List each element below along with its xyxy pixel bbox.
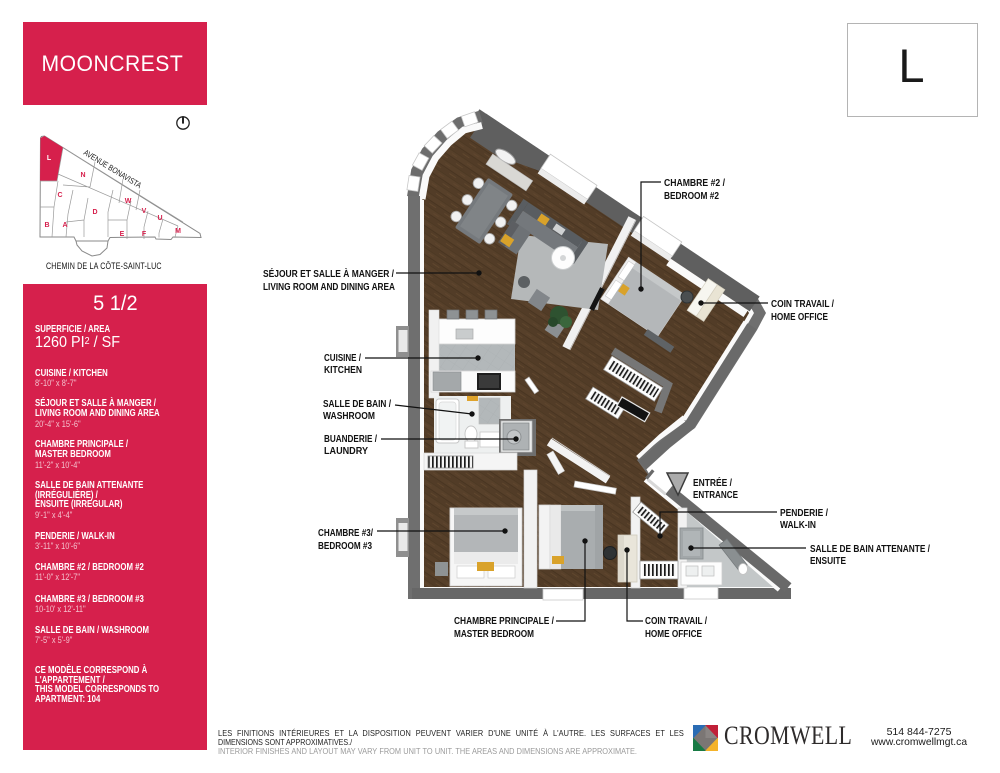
svg-text:WALK-IN: WALK-IN (780, 519, 816, 531)
svg-text:ENTRANCE: ENTRANCE (693, 489, 738, 501)
svg-text:PENDERIE /: PENDERIE / (780, 507, 828, 519)
svg-text:CHAMBRE PRINCIPALE /: CHAMBRE PRINCIPALE / (454, 615, 554, 627)
svg-text:MASTER BEDROOM: MASTER BEDROOM (454, 628, 534, 640)
svg-text:CUISINE /: CUISINE / (324, 352, 361, 364)
svg-text:SALLE DE BAIN /: SALLE DE BAIN / (323, 398, 391, 410)
svg-text:HOME OFFICE: HOME OFFICE (645, 628, 702, 640)
svg-text:BUANDERIE /: BUANDERIE / (324, 433, 377, 445)
svg-text:SÉJOUR ET SALLE À MANGER /: SÉJOUR ET SALLE À MANGER / (263, 267, 394, 280)
svg-text:ENTRÉE /: ENTRÉE / (693, 476, 732, 489)
svg-text:ENSUITE: ENSUITE (810, 555, 846, 567)
svg-text:BEDROOM #3: BEDROOM #3 (318, 540, 372, 552)
svg-text:KITCHEN: KITCHEN (324, 364, 362, 376)
svg-text:LAUNDRY: LAUNDRY (324, 445, 368, 457)
svg-text:WASHROOM: WASHROOM (323, 410, 375, 422)
svg-text:COIN TRAVAIL /: COIN TRAVAIL / (771, 298, 834, 310)
svg-text:HOME OFFICE: HOME OFFICE (771, 311, 828, 323)
svg-text:COIN TRAVAIL /: COIN TRAVAIL / (645, 615, 707, 627)
svg-text:CHAMBRE #2 /: CHAMBRE #2 / (664, 177, 725, 189)
svg-text:CHAMBRE #3/: CHAMBRE #3/ (318, 527, 373, 539)
svg-text:LIVING ROOM AND DINING AREA: LIVING ROOM AND DINING AREA (263, 281, 395, 293)
svg-text:SALLE DE BAIN ATTENANTE /: SALLE DE BAIN ATTENANTE / (810, 543, 930, 555)
svg-text:BEDROOM #2: BEDROOM #2 (664, 190, 719, 202)
